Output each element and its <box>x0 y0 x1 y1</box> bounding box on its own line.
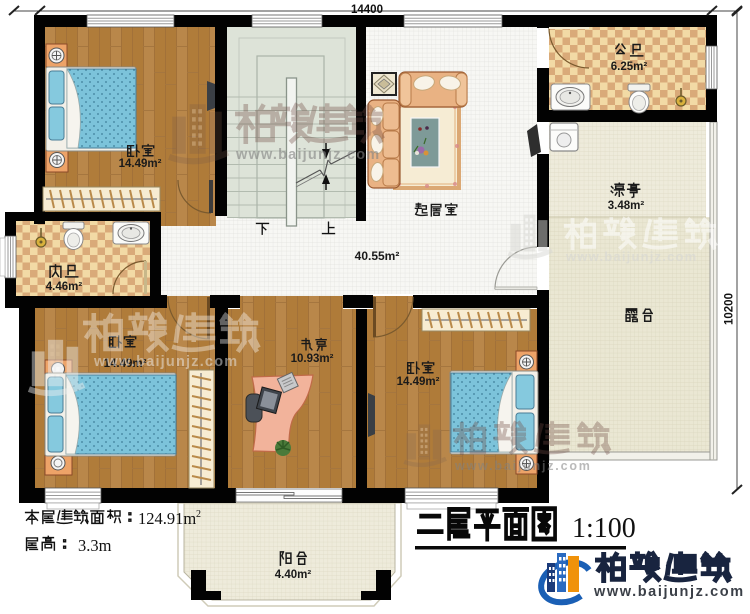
svg-text:1:100: 1:100 <box>572 513 636 544</box>
svg-text:www.baijunjz.com: www.baijunjz.com <box>93 354 238 370</box>
svg-text:3.48m²: 3.48m² <box>608 200 645 212</box>
svg-text:10200: 10200 <box>724 293 736 325</box>
svg-text:14400: 14400 <box>351 4 383 16</box>
svg-text:4.46m²: 4.46m² <box>46 281 83 293</box>
svg-text:6.25m²: 6.25m² <box>611 61 648 73</box>
svg-text:40.55m²: 40.55m² <box>355 249 400 263</box>
svg-text:3.3m: 3.3m <box>78 536 112 555</box>
svg-text:www.baijunjz.com: www.baijunjz.com <box>235 147 380 163</box>
svg-text:4.40m²: 4.40m² <box>275 569 312 581</box>
svg-text:www.baijunjz.com: www.baijunjz.com <box>593 584 745 600</box>
svg-text:10.93m²: 10.93m² <box>291 353 334 365</box>
svg-text:14.49m²: 14.49m² <box>119 158 162 170</box>
svg-text:www.baijunjz.com: www.baijunjz.com <box>454 459 592 473</box>
svg-text:2: 2 <box>196 509 201 520</box>
svg-text:124.91m: 124.91m <box>138 509 196 528</box>
svg-text:14.49m²: 14.49m² <box>397 376 440 388</box>
svg-text:www.baijunjz.com: www.baijunjz.com <box>565 249 697 264</box>
